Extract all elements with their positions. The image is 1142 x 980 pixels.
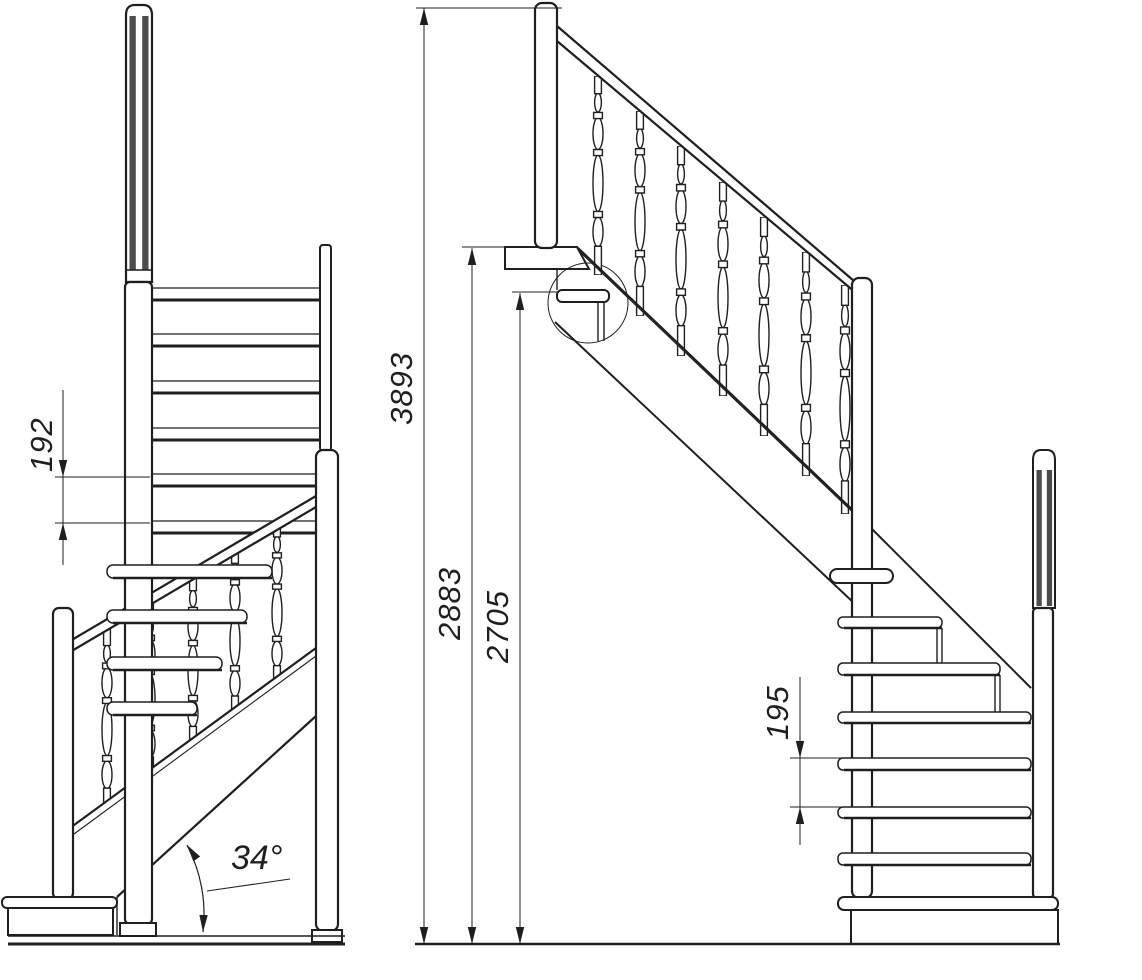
- front-far-post: [320, 245, 331, 451]
- staircase-drawing: 192 34°: [0, 0, 1142, 980]
- dim-label-195: 195: [760, 685, 795, 740]
- dim-label-192: 192: [24, 417, 59, 472]
- front-left-newel: [120, 282, 156, 936]
- side-first-step: [838, 897, 1058, 944]
- side-top-newel: [535, 3, 557, 248]
- side-bottom-newel: [1033, 608, 1053, 898]
- dim-label-2705: 2705: [480, 590, 515, 664]
- front-handrail-end: [126, 5, 152, 282]
- front-start-newel: [53, 608, 73, 899]
- side-handrail-end: [1033, 450, 1055, 608]
- front-first-step: [2, 897, 117, 935]
- dim-label-3893: 3893: [384, 352, 419, 425]
- drawing-sheet: 192 34°: [0, 0, 1142, 980]
- front-right-newel: [312, 450, 342, 942]
- angle-label: 34°: [231, 839, 282, 877]
- side-landing-floor: [505, 247, 589, 269]
- dim-label-2883: 2883: [432, 567, 467, 641]
